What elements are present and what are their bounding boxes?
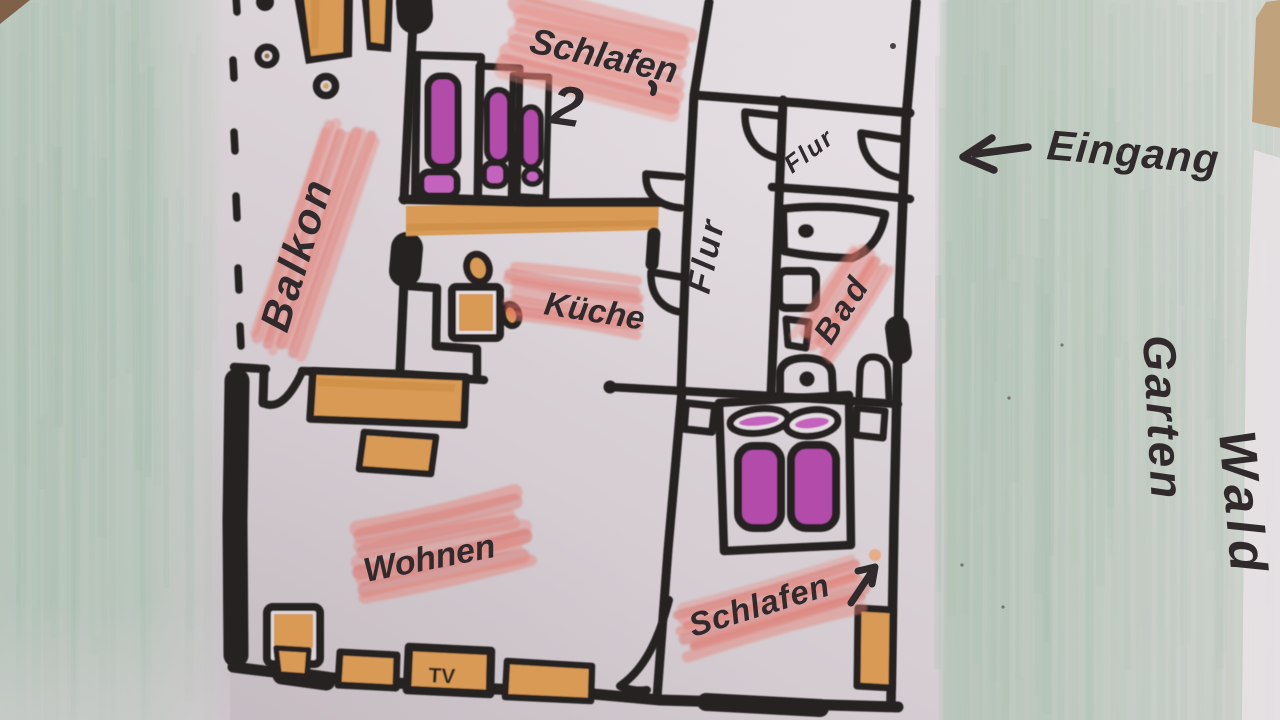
svg-text:TV: TV (428, 664, 456, 688)
svg-text:Garten: Garten (1133, 334, 1194, 503)
